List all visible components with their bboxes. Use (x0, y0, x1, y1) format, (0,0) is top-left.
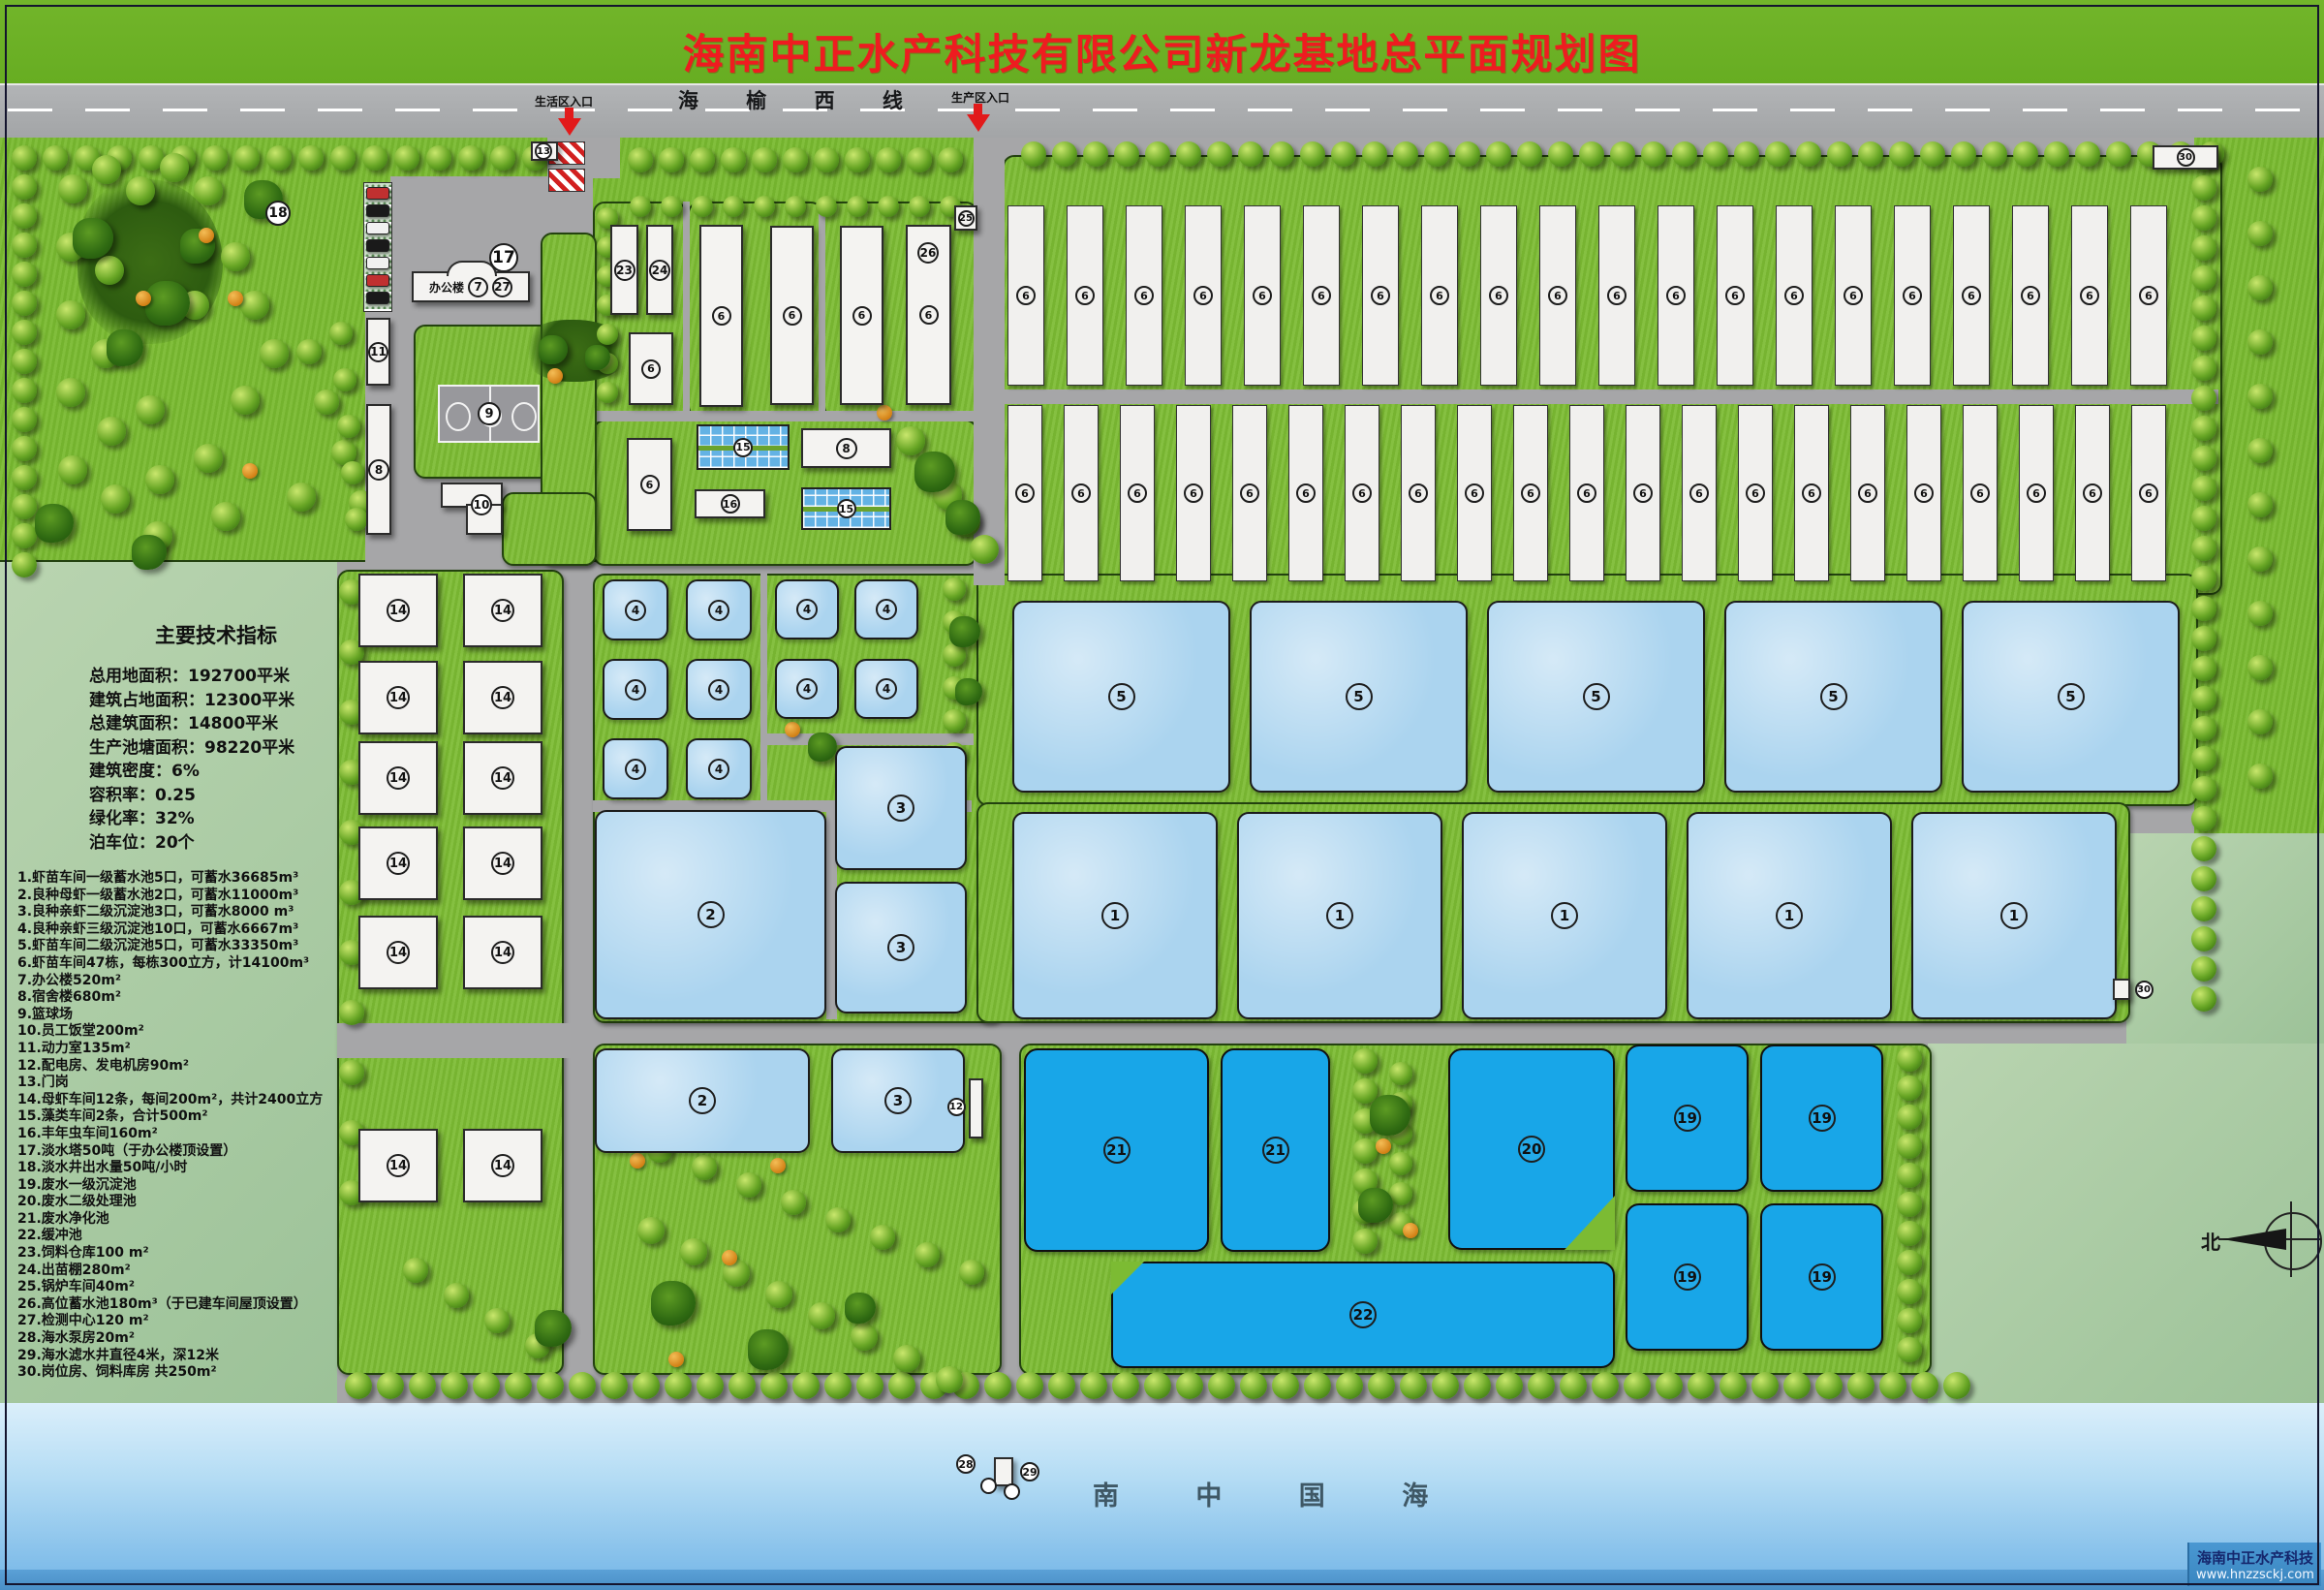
marker-shed: 6 (2080, 286, 2099, 305)
secondary-pond-5: 5 (1962, 601, 2180, 793)
shrimp-shed: 6 (2012, 205, 2049, 386)
legend-item: 14.母虾车间12条，每间200m²，共计2400立方 (17, 1092, 323, 1109)
tree (909, 196, 930, 217)
tree (1389, 1062, 1412, 1085)
tree (1176, 141, 1201, 167)
tree (2191, 356, 2216, 381)
settling-pond-4: 4 (775, 659, 839, 719)
tree (728, 1372, 756, 1399)
tree (2191, 596, 2216, 621)
marker-mother: 14 (387, 941, 410, 964)
tree (1455, 141, 1480, 167)
tree (1897, 1134, 1922, 1159)
tree (1300, 141, 1325, 167)
tree (569, 1372, 596, 1399)
tree (754, 196, 775, 217)
legend-item: 21.废水净化池 (17, 1211, 323, 1229)
shrimp-shed: 6 (1421, 205, 1458, 386)
orange-shrub (242, 463, 258, 479)
tree (56, 300, 85, 329)
tree (1052, 141, 1077, 167)
tree (2191, 476, 2216, 501)
marker-pond5: 5 (1346, 683, 1373, 710)
tech-indicator-line: 建筑密度：6% (89, 760, 343, 784)
tree (2191, 506, 2216, 531)
legend-item: 7.办公楼520m² (17, 973, 323, 990)
tree (851, 1324, 878, 1351)
tree (12, 349, 37, 374)
tree (825, 1207, 851, 1232)
marker-shed: 6 (1962, 286, 1981, 305)
tree (211, 502, 240, 531)
filter-well (980, 1478, 997, 1494)
marker-mother: 14 (387, 1154, 410, 1177)
tree (1796, 141, 1821, 167)
tree (1827, 141, 1852, 167)
shrimp-shed: 6 (1963, 405, 1998, 581)
tree (12, 291, 37, 316)
storage-pond-2: 2 (595, 1048, 810, 1153)
shrimp-shed: 6 (1850, 405, 1885, 581)
marker-bld23: 23 (614, 260, 635, 281)
tree (2191, 386, 2216, 411)
tree (1897, 1250, 1922, 1275)
tree (2191, 896, 2216, 921)
parked-car (366, 274, 389, 287)
legend-list: 1.虾苗车间一级蓄水池5口，可蓄水36685m³2.良种母虾一级蓄水池2口，可蓄… (17, 870, 323, 1382)
legend-item: 4.良种亲虾三级沉淀池10口，可蓄水6667m³ (17, 921, 323, 939)
mother-shrimp-shed-14: 14 (463, 741, 542, 815)
tree (2191, 446, 2216, 471)
tree (458, 145, 483, 171)
orange-shrub (668, 1352, 684, 1367)
tree (341, 461, 364, 484)
tree (1362, 141, 1387, 167)
tree (1751, 1372, 1779, 1399)
tree (296, 339, 322, 364)
tree (1982, 141, 2007, 167)
tree (896, 426, 925, 455)
marker-shed: 6 (1746, 483, 1765, 503)
tree (816, 196, 837, 217)
tree (1879, 1372, 1906, 1399)
tree (870, 1225, 895, 1250)
marker-shed: 6 (1689, 483, 1709, 503)
tree (329, 322, 353, 345)
marker-shed: 6 (2027, 483, 2046, 503)
orange-shrub (722, 1250, 737, 1265)
seedling-shed-24: 24 (646, 225, 673, 315)
tree (2191, 296, 2216, 321)
tree (1352, 1138, 1378, 1164)
marker-shed: 6 (640, 475, 660, 494)
sea-name: 南 中 国 海 (1093, 1475, 1434, 1512)
secondary-pond-5: 5 (1012, 601, 1230, 793)
marker-shed: 6 (1184, 483, 1203, 503)
tree (12, 233, 37, 258)
tech-indicator-line: 生产池塘面积：98220平米 (89, 736, 343, 761)
marker-shed: 6 (1633, 483, 1653, 503)
right-pale-area-upper (2126, 833, 2324, 1044)
tree (1610, 141, 1635, 167)
tree (2247, 546, 2273, 572)
legend-item: 23.饲料仓库100 m² (17, 1245, 323, 1263)
tree (1496, 1372, 1523, 1399)
legend-item: 26.高位蓄水池180m³（于已建车间屋顶设置） (17, 1296, 323, 1314)
tree (1951, 141, 1976, 167)
tree (2247, 167, 2273, 192)
primary-pond-1: 1 (1237, 812, 1442, 1019)
tree (601, 1372, 628, 1399)
tree (781, 1190, 806, 1215)
tree (628, 147, 653, 172)
tree (2247, 655, 2273, 680)
tree (1208, 1372, 1235, 1399)
marker-pond4: 4 (796, 599, 818, 620)
mother-shrimp-shed-14: 14 (358, 826, 438, 900)
tree (145, 465, 174, 494)
marker-shed: 6 (1465, 483, 1484, 503)
generator-room-12 (969, 1078, 983, 1138)
marker-shed: 6 (1371, 286, 1390, 305)
marker-mother: 14 (491, 686, 514, 709)
feed-warehouse-23: 23 (610, 225, 638, 315)
waste-settling-pond-19: 19 (1760, 1044, 1883, 1192)
tree (630, 196, 651, 217)
shrimp-shed: 6 (1362, 205, 1399, 386)
settling-pond-3: 3 (831, 1048, 965, 1153)
primary-pond-1: 1 (1687, 812, 1892, 1019)
tree (1579, 141, 1604, 167)
tree (2191, 235, 2216, 261)
tree (1911, 1372, 1938, 1399)
tree (1783, 1372, 1811, 1399)
tree (1624, 1372, 1651, 1399)
marker-shed: 6 (2083, 483, 2102, 503)
tree (1528, 1372, 1555, 1399)
tree (760, 1372, 788, 1399)
tree (298, 145, 324, 171)
marker-shed: 6 (1548, 286, 1567, 305)
marker-mother: 14 (491, 1154, 514, 1177)
tree (12, 436, 37, 461)
marker-bld24: 24 (649, 260, 670, 281)
office-label: 办公楼 (429, 279, 464, 296)
tech-indicator-lines: 总用地面积：192700平米建筑占地面积：12300平米总建筑面积：14800平… (89, 665, 343, 855)
tree (266, 145, 292, 171)
tree (473, 1372, 500, 1399)
marker-pond4: 4 (625, 759, 646, 780)
tree (752, 147, 777, 172)
marker-shed: 6 (1128, 483, 1147, 503)
marker-mother: 14 (387, 852, 410, 875)
tree (377, 1372, 404, 1399)
tree (721, 147, 746, 172)
marker-bld16: 16 (721, 494, 740, 514)
court-line (511, 402, 537, 431)
tree (637, 1217, 665, 1244)
tree (2191, 716, 2216, 741)
shrimp-shed: 6 (1120, 405, 1155, 581)
shrimp-shed: 6 (2130, 205, 2167, 386)
tree (314, 390, 339, 415)
tree (1083, 141, 1108, 167)
mid-alley-1 (683, 202, 690, 414)
waste-settling-pond-19: 19 (1760, 1203, 1883, 1351)
marker-pond5: 5 (1583, 683, 1610, 710)
tree (2075, 141, 2100, 167)
marker-pond1: 1 (1101, 902, 1129, 929)
legend-item: 13.门岗 (17, 1075, 323, 1092)
tree (1304, 1372, 1331, 1399)
tech-indicator-line: 总用地面积：192700平米 (89, 665, 343, 689)
tree (2247, 601, 2273, 626)
tree (287, 483, 316, 512)
marker-mother: 14 (491, 766, 514, 790)
marker-shed: 6 (1075, 286, 1095, 305)
tree (723, 196, 744, 217)
tree (692, 196, 713, 217)
tree (792, 1372, 820, 1399)
tree (409, 1372, 436, 1399)
shrimp-shed: 6 (1513, 405, 1548, 581)
tree (1847, 1372, 1875, 1399)
tree (1560, 1372, 1587, 1399)
tree (1144, 1372, 1171, 1399)
tech-indicator-line: 建筑占地面积：12300平米 (89, 689, 343, 713)
tree (1114, 141, 1139, 167)
tree (943, 709, 966, 733)
tree (2191, 926, 2216, 951)
pond-alley-1 (760, 574, 767, 806)
tree (845, 147, 870, 172)
parked-car (366, 222, 389, 234)
tree (2106, 141, 2131, 167)
tree (808, 1302, 835, 1329)
shrimp-shed: 6 (1126, 205, 1162, 386)
tree (1897, 1308, 1922, 1333)
tree (736, 1172, 761, 1198)
marker-shed: 6 (1240, 483, 1259, 503)
tree (330, 145, 356, 171)
tree (12, 174, 37, 200)
legend-item: 24.出苗棚280m² (17, 1263, 323, 1280)
shrimp-shed: 6 (840, 226, 883, 405)
marker-shed: 6 (919, 305, 939, 325)
primary-pond-1: 1 (1012, 812, 1218, 1019)
tree (441, 1372, 468, 1399)
shrimp-shed: 6 (2131, 405, 2166, 581)
shrimp-shed: 6 (1401, 405, 1436, 581)
primary-pond-1: 1 (1911, 812, 2117, 1019)
tree (1424, 141, 1449, 167)
shrimp-shed: 6 (1185, 205, 1222, 386)
marker-pond4: 4 (708, 679, 729, 701)
tree (1272, 1372, 1299, 1399)
shrimp-shed: 6 (1794, 405, 1829, 581)
tree (2191, 776, 2216, 801)
tree (1920, 141, 1945, 167)
tree (339, 1000, 364, 1025)
marker-shed: 6 (1802, 483, 1821, 503)
tree (1897, 1221, 1922, 1246)
marker-bld17: 17 (489, 243, 518, 272)
mother-shrimp-shed-14: 14 (358, 1129, 438, 1202)
mid-alley-2 (819, 202, 825, 414)
marker-mother: 14 (491, 599, 514, 622)
tree (56, 378, 85, 407)
tree (1943, 1372, 1970, 1399)
tree (484, 1308, 510, 1333)
shrimp-shed: 6 (1717, 205, 1753, 386)
tree (765, 1281, 792, 1308)
shrimp-shed: 6 (1067, 205, 1103, 386)
shrimp-shed: 6 (1598, 205, 1635, 386)
settling-pond-4: 4 (603, 738, 668, 799)
marker-pond4: 4 (876, 599, 897, 620)
shrimp-shed: 6 (1658, 205, 1694, 386)
tree (1641, 141, 1666, 167)
marker-pond4: 4 (708, 759, 729, 780)
tree (783, 147, 808, 172)
legend-item: 20.废水二级处理池 (17, 1194, 323, 1211)
shrimp-shed: 6 (1457, 405, 1492, 581)
tree (12, 145, 37, 171)
marker-mother: 14 (491, 852, 514, 875)
marker-pond21: 21 (1262, 1137, 1289, 1164)
marker-shed: 6 (1784, 286, 1804, 305)
tree (160, 153, 189, 182)
marker-shed: 6 (1844, 286, 1863, 305)
tree (1432, 1372, 1459, 1399)
mother-shrimp-shed-14: 14 (463, 1129, 542, 1202)
tree (2191, 205, 2216, 231)
marker-pond4: 4 (625, 600, 646, 621)
shrimp-shed: 6 (627, 438, 672, 531)
compass-arrow (2222, 1229, 2286, 1250)
tree (597, 324, 618, 345)
primary-pond-1: 1 (1462, 812, 1667, 1019)
marker-bld26: 26 (917, 242, 939, 264)
sea-pump-house (994, 1457, 1013, 1486)
secondary-pond-5: 5 (1724, 601, 1942, 793)
shrimp-shed: 6 (1232, 405, 1267, 581)
tree (943, 577, 966, 601)
tech-indicator-line: 绿化率：32% (89, 807, 343, 831)
tree (490, 145, 515, 171)
legend-item: 1.虾苗车间一级蓄水池5口，可蓄水36685m³ (17, 870, 323, 888)
mother-shrimp-shed-14: 14 (358, 741, 438, 815)
purify-pond-21: 21 (1024, 1048, 1209, 1252)
marker-mother: 14 (387, 766, 410, 790)
tree (505, 1372, 532, 1399)
secondary-pond-5: 5 (1250, 601, 1468, 793)
settling-pond-4: 4 (686, 579, 752, 640)
tree (194, 444, 223, 473)
marker-filter29: 29 (1020, 1462, 1039, 1481)
tree (1815, 1372, 1843, 1399)
tree (938, 147, 963, 172)
tree (856, 1372, 883, 1399)
watermark-company: 海南中正水产科技 (2197, 1547, 2313, 1568)
tree (893, 1345, 920, 1372)
marker-pond20: 20 (1518, 1136, 1545, 1163)
tree (659, 147, 684, 172)
tree (2191, 986, 2216, 1012)
settling-pond-4: 4 (775, 579, 839, 639)
tree (1080, 1372, 1107, 1399)
watermark-box: 海南中正水产科技 www.hnzzsckj.com (2187, 1543, 2321, 1586)
tree (345, 1372, 372, 1399)
marker-pond19: 19 (1674, 1263, 1701, 1291)
tree (697, 1372, 724, 1399)
legend-item: 28.海水泵房20m² (17, 1330, 323, 1348)
marker-pond3: 3 (887, 934, 914, 961)
tree (2247, 329, 2273, 355)
marker-bld12: 12 (947, 1098, 966, 1116)
tree (1368, 1372, 1395, 1399)
tree (1688, 1372, 1715, 1399)
tree (339, 1060, 364, 1085)
marker-shed: 6 (641, 359, 661, 379)
shrimp-shed: 6 (1682, 405, 1717, 581)
mother-shrimp-shed-14: 14 (358, 574, 438, 647)
marker-pond19: 19 (1674, 1105, 1701, 1132)
legend-item: 9.篮球场 (17, 1007, 323, 1024)
shrimp-shed: 6 (1626, 405, 1660, 581)
mother-shrimp-shed-14: 14 (358, 661, 438, 734)
tree (101, 484, 130, 514)
tree (2247, 438, 2273, 463)
marker-shed: 6 (1970, 483, 1990, 503)
tree (2247, 492, 2273, 517)
tree (970, 535, 999, 564)
tree (362, 145, 387, 171)
marker-pond19: 19 (1809, 1105, 1836, 1132)
shrimp-shed: 6 (1835, 205, 1872, 386)
tree (1897, 1076, 1922, 1101)
tree (2191, 866, 2216, 891)
marker-pond1: 1 (1776, 902, 1803, 929)
tree (240, 291, 269, 320)
compass: 北 (2218, 1201, 2324, 1279)
marker-pond19: 19 (1809, 1263, 1836, 1291)
tree (1656, 1372, 1683, 1399)
tree (1889, 141, 1914, 167)
shrimp-shed: 6 (1345, 405, 1379, 581)
shrimp-shed: 6 (1906, 405, 1941, 581)
tree (2191, 956, 2216, 982)
shrimp-shed: 6 (2071, 205, 2108, 386)
orange-shrub (228, 291, 243, 306)
marker-pond5: 5 (1108, 683, 1135, 710)
tree (95, 256, 124, 285)
legend-item: 22.缓冲池 (17, 1228, 323, 1245)
marker-shed: 6 (1725, 286, 1745, 305)
tree (824, 1372, 852, 1399)
tree (984, 1372, 1011, 1399)
legend-item: 25.锅炉车间40m² (17, 1279, 323, 1296)
legend-item: 15.藻类车间2条，合计500m² (17, 1108, 323, 1126)
office-building: 办公楼727 (412, 271, 530, 302)
buffer-pond-22: 22 (1111, 1262, 1615, 1368)
marker-bld27: 27 (492, 277, 512, 297)
tree (1352, 1229, 1378, 1254)
parked-car (366, 257, 389, 269)
tree (1765, 141, 1790, 167)
shrimp-shed: 6 (1288, 405, 1323, 581)
mother-shrimp-shed-14: 14 (358, 916, 438, 989)
